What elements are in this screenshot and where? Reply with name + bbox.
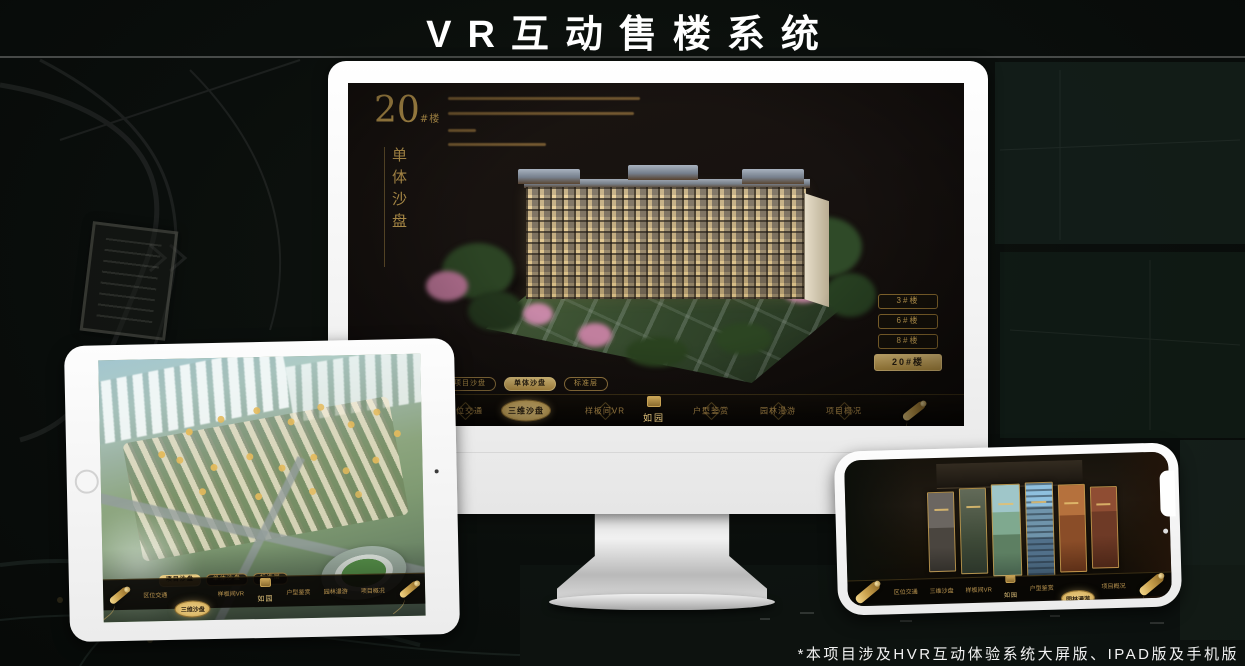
building-roof-tower	[628, 165, 698, 180]
building-model	[516, 167, 826, 303]
nav-item-project-overview[interactable]: 项目概况	[826, 405, 862, 416]
phone-mockup: 区位交通 三维沙盘 样板间VR 如园 户型鉴赏 园林漫游 项目概况	[834, 442, 1182, 616]
nav-item-label: 样板间VR	[218, 591, 244, 598]
tablet-screen: 项目沙盘 单体沙盘 标准层 区位交通 三维沙盘 样板间VR 如园 户型鉴赏 园林…	[98, 354, 425, 623]
floor-button[interactable]: 8#楼	[878, 334, 938, 349]
scroll-ornament-icon	[1138, 572, 1165, 597]
brand-logo[interactable]: 如园	[1003, 575, 1018, 602]
gallery-panel-building[interactable]	[1024, 482, 1055, 577]
building-roof-tower	[518, 169, 580, 184]
block-number-suffix: #楼	[420, 114, 440, 125]
nav-item-label: 户型鉴赏	[1030, 586, 1054, 593]
building-facade	[526, 187, 806, 299]
seal-icon	[647, 396, 661, 407]
nav-item-label: 三维沙盘	[508, 406, 544, 415]
seal-icon	[1005, 575, 1015, 583]
nav-item-location[interactable]: 区位交通	[894, 587, 918, 597]
nav-item-garden-tour[interactable]: 园林漫游	[1066, 593, 1090, 603]
nav-item-label: 户型鉴赏	[286, 590, 310, 597]
brand-logo-text: 如园	[257, 595, 273, 603]
nav-item-showroom-vr[interactable]: 样板间VR	[965, 584, 992, 594]
floor-button[interactable]: 6#楼	[878, 314, 938, 329]
tab-standard-floor[interactable]: 标准层	[564, 377, 608, 391]
description-line	[448, 143, 546, 146]
nav-item-label: 区位交通	[894, 590, 918, 597]
nav-item-label: 项目概况	[1102, 584, 1126, 591]
gallery-panel-winecase[interactable]	[1090, 486, 1119, 569]
block-number-heading: 20#楼	[374, 93, 440, 129]
nav-item-3d-sandbox[interactable]: 三维沙盘	[181, 604, 205, 614]
phone-notch	[1159, 470, 1175, 516]
seal-icon	[259, 578, 270, 587]
poster-canvas: VR互动售楼系统 20#楼 单体沙盘	[0, 0, 1245, 666]
brand-logo[interactable]: 如园	[257, 578, 274, 606]
floor-button-active[interactable]: 20#楼	[874, 354, 942, 371]
flower-blob	[578, 323, 612, 347]
flower-blob	[523, 303, 553, 325]
nav-item-unit-plans[interactable]: 户型鉴赏	[1030, 583, 1054, 593]
tablet-mockup: 项目沙盘 单体沙盘 标准层 区位交通 三维沙盘 样板间VR 如园 户型鉴赏 园林…	[64, 338, 460, 642]
nav-item-label: 三维沙盘	[181, 607, 205, 614]
brand-logo[interactable]: 如园	[643, 396, 665, 426]
nav-item-3d-sandbox[interactable]: 三维沙盘	[508, 405, 544, 416]
scroll-ornament-icon	[398, 579, 419, 598]
gallery-panel-livingroom[interactable]	[927, 491, 956, 572]
nav-item-label: 区位交通	[143, 593, 167, 600]
phone-camera-dot	[1163, 529, 1168, 534]
scroll-ornament-icon	[108, 585, 129, 604]
tree-blob	[626, 337, 688, 367]
block-subtitle-vertical: 单体沙盘	[384, 147, 410, 267]
nav-item-showroom-vr[interactable]: 样板间VR	[585, 405, 625, 416]
gallery-panel-autumn[interactable]	[1057, 484, 1087, 573]
nav-item-label: 户型鉴赏	[693, 406, 729, 415]
gallery-panel-garden[interactable]	[991, 484, 1022, 577]
gallery-panel-lobby[interactable]	[959, 488, 989, 575]
description-line	[448, 97, 640, 100]
footer-caption: *本项目涉及HVR互动体验系统大屏版、IPAD版及手机版	[798, 643, 1239, 664]
nav-item-project-overview[interactable]: 项目概况	[361, 585, 385, 595]
tablet-camera-dot	[435, 469, 439, 473]
nav-item-location[interactable]: 区位交通	[143, 590, 167, 600]
tab-single-sandbox[interactable]: 单体沙盘	[504, 377, 556, 391]
nav-item-label: 项目概况	[361, 588, 385, 595]
floor-button[interactable]: 3#楼	[878, 294, 938, 309]
nav-item-unit-plans[interactable]: 户型鉴赏	[286, 587, 310, 597]
building-roof-tower	[742, 169, 804, 184]
flower-blob	[426, 271, 468, 301]
nav-item-garden-tour[interactable]: 园林漫游	[760, 405, 796, 416]
nav-item-label: 项目概况	[826, 406, 862, 415]
gallery-panels	[927, 479, 1120, 580]
nav-item-label: 园林漫游	[760, 406, 796, 415]
nav-end	[901, 407, 927, 415]
nav-item-3d-sandbox[interactable]: 三维沙盘	[929, 586, 953, 596]
tree-blob	[824, 273, 876, 317]
tree-blob	[716, 323, 772, 355]
building-side-wall	[804, 193, 829, 307]
nav-item-label: 样板间VR	[585, 406, 625, 415]
scroll-ornament-icon	[854, 580, 881, 605]
background-plaque-photo	[80, 221, 179, 341]
nav-item-label: 三维沙盘	[930, 589, 954, 596]
nav-item-label: 园林漫游	[1066, 596, 1090, 603]
title-divider	[0, 56, 1245, 58]
floor-button-group: 3#楼 6#楼 8#楼 20#楼	[872, 294, 944, 376]
nav-item-label: 样板间VR	[965, 587, 992, 594]
block-number: 20	[374, 90, 420, 131]
building-model-scene	[428, 151, 898, 389]
view-tab-group: 项目沙盘 单体沙盘 标准层	[444, 377, 608, 391]
nav-item-garden-tour[interactable]: 园林漫游	[324, 586, 348, 596]
tablet-home-button[interactable]	[75, 469, 99, 493]
nav-item-project-overview[interactable]: 项目概况	[1101, 581, 1125, 591]
nav-item-showroom-vr[interactable]: 样板间VR	[218, 588, 245, 598]
description-line	[448, 112, 634, 115]
monitor-stand-base	[549, 594, 775, 610]
nav-item-unit-plans[interactable]: 户型鉴赏	[693, 405, 729, 416]
brand-logo-text: 如园	[643, 414, 665, 424]
description-line	[448, 129, 476, 132]
scroll-ornament-icon	[901, 399, 926, 421]
page-title: VR互动售楼系统	[0, 3, 1245, 58]
phone-screen: 区位交通 三维沙盘 样板间VR 如园 户型鉴赏 园林漫游 项目概况	[844, 452, 1172, 607]
brand-logo-text: 如园	[1004, 592, 1018, 599]
nav-item-label: 园林漫游	[324, 589, 348, 596]
